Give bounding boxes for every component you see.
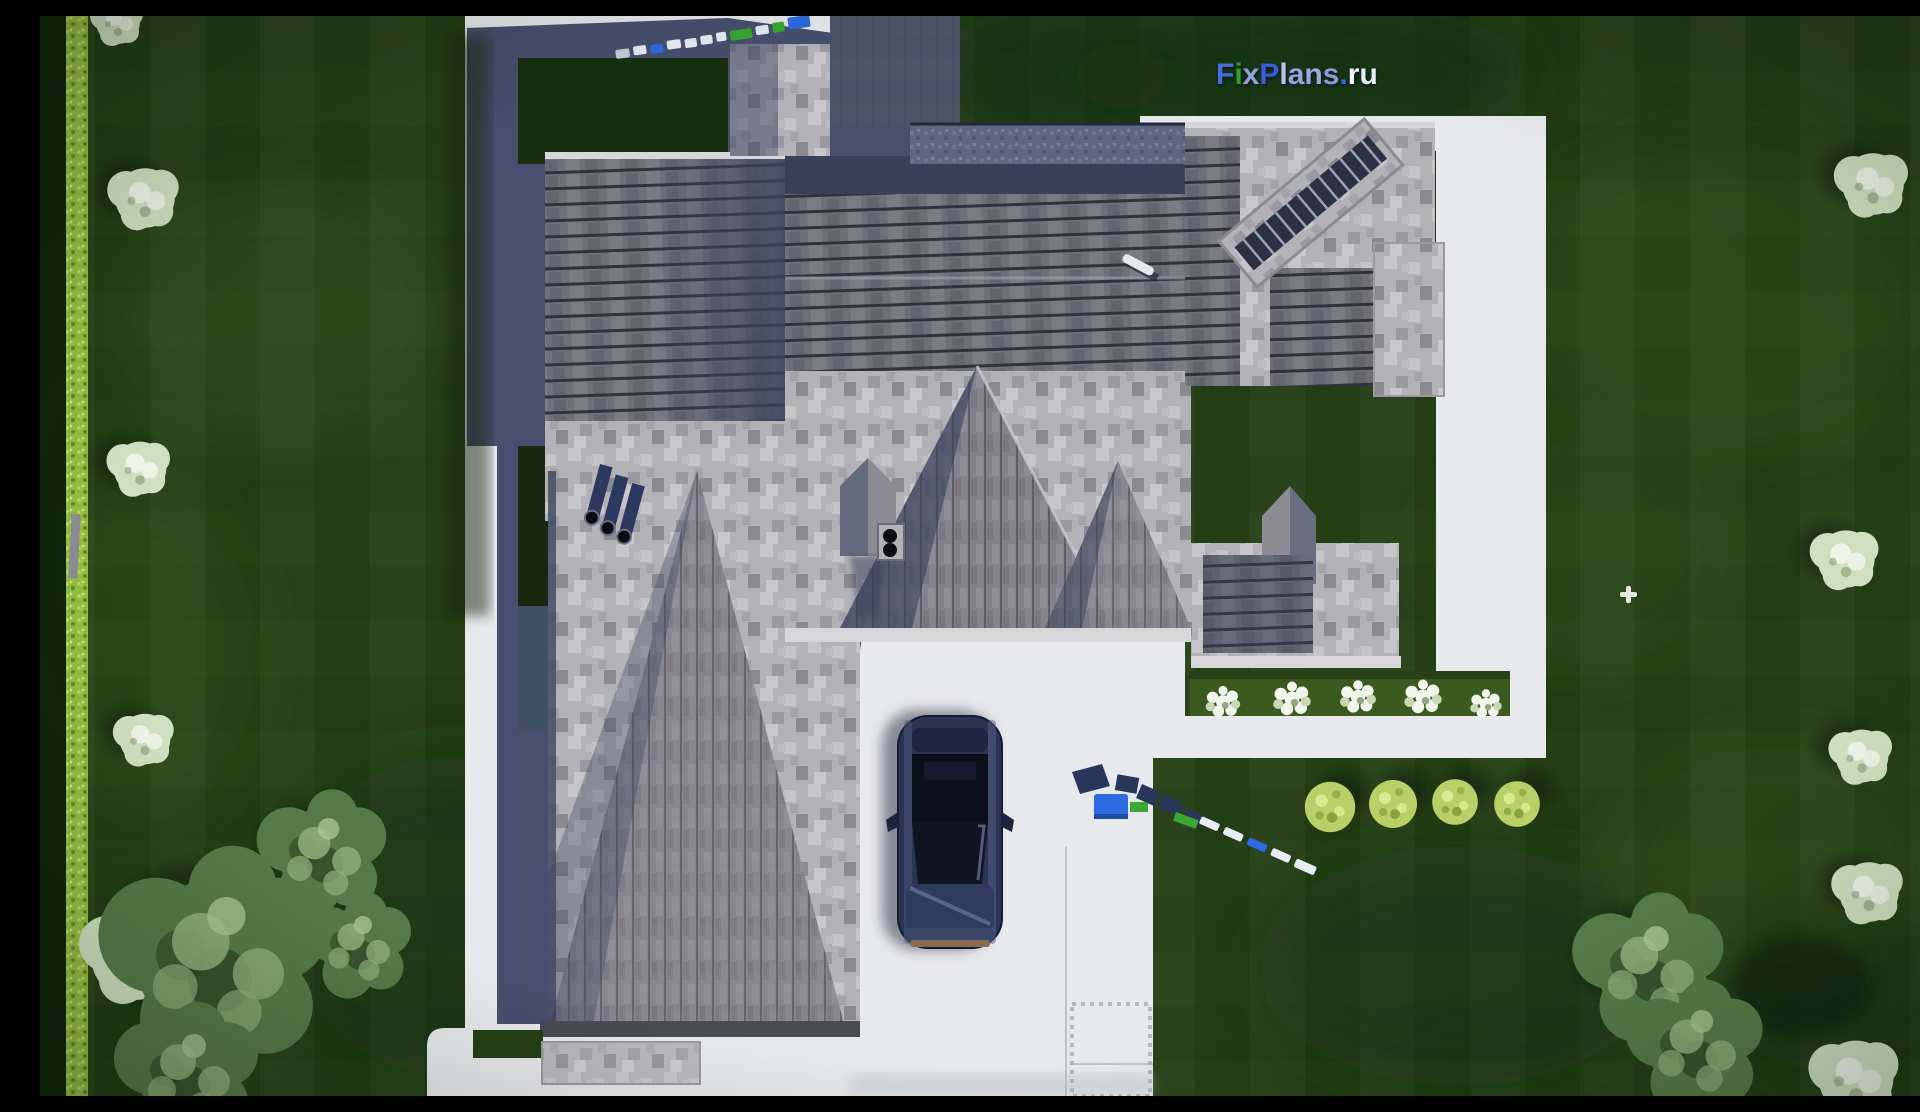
vignette bbox=[40, 16, 1920, 1096]
watermark-letter: u bbox=[1359, 58, 1377, 92]
watermark: FixPlans.ru bbox=[1216, 58, 1378, 92]
watermark-letter: i bbox=[1234, 58, 1242, 92]
watermark-letter: r bbox=[1348, 58, 1360, 92]
watermark-letter: s bbox=[1323, 58, 1340, 92]
site-plan-render: FixPlans.ru bbox=[40, 16, 1920, 1096]
watermark-letter: x bbox=[1243, 58, 1260, 92]
watermark-letter: P bbox=[1259, 58, 1279, 92]
watermark-letter: n bbox=[1304, 58, 1322, 92]
scene-canvas bbox=[40, 16, 1920, 1096]
watermark-letter: a bbox=[1288, 58, 1305, 92]
watermark-letter: l bbox=[1279, 58, 1287, 92]
watermark-letter: . bbox=[1339, 58, 1347, 92]
watermark-letter: F bbox=[1216, 58, 1234, 92]
